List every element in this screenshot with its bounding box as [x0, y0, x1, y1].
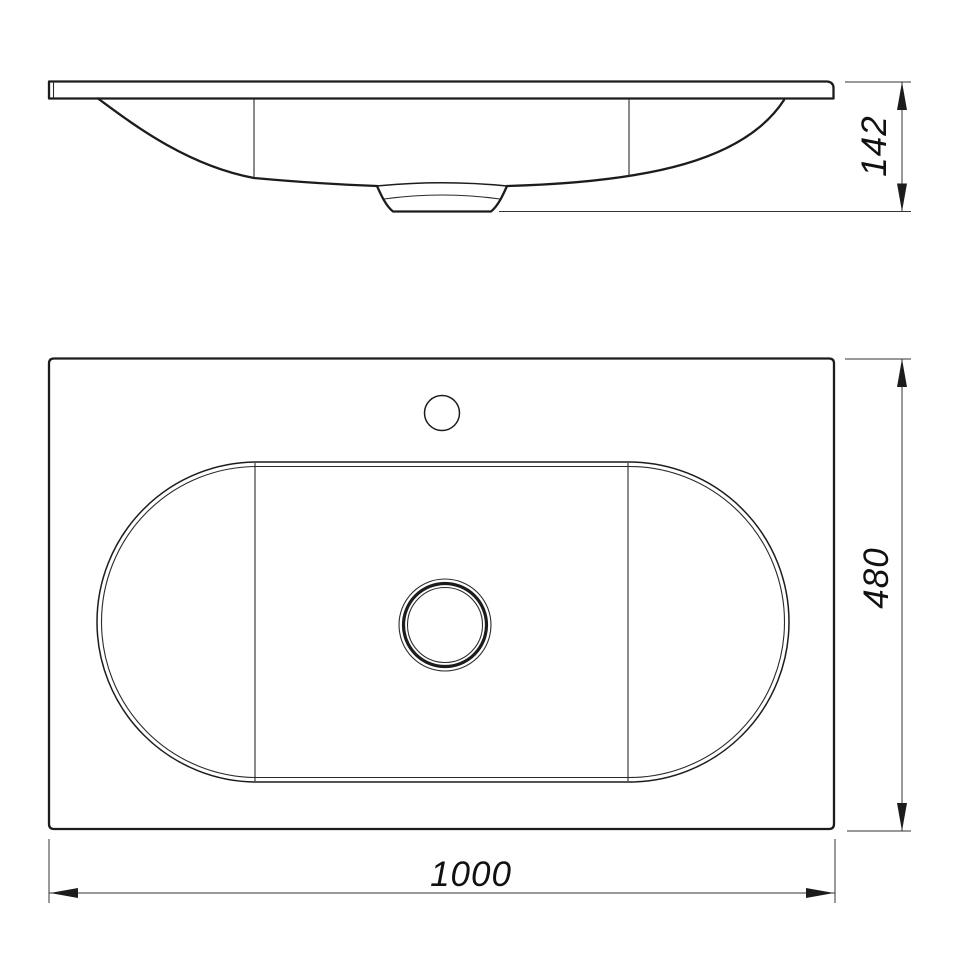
dimension-value-1000: 1000 — [430, 855, 512, 894]
plan-view: 480 1000 — [49, 359, 911, 904]
drawing-canvas: 142 — [0, 0, 970, 970]
arrowhead-left — [50, 888, 78, 898]
arrowhead-right — [806, 888, 834, 898]
dimension-1000: 1000 — [49, 839, 835, 903]
drain-main-ring — [404, 584, 487, 667]
dimension-480: 480 — [845, 359, 911, 831]
drain-trap-inner-edge — [384, 195, 500, 199]
arrowhead-up — [897, 82, 907, 110]
faucet-hole — [425, 396, 460, 431]
dimension-value-480: 480 — [857, 547, 896, 608]
arrowhead-down — [897, 803, 907, 831]
side-elevation-view: 142 — [49, 82, 911, 212]
basin-rim-outer — [97, 462, 789, 782]
slab-plan-outline — [49, 359, 834, 830]
washbasin-technical-drawing: 142 — [0, 0, 970, 970]
arrowhead-up — [897, 359, 907, 387]
arrowhead-down — [897, 184, 907, 212]
slab-outline — [49, 82, 834, 99]
drain-trap-rim — [377, 183, 507, 186]
drain-hole — [399, 579, 491, 671]
drain-inner-ring — [408, 588, 483, 663]
drain-outer-ring — [399, 579, 491, 671]
basin-rim-inner — [102, 467, 785, 778]
dimension-value-142: 142 — [855, 115, 894, 176]
dimension-142: 142 — [499, 82, 911, 212]
